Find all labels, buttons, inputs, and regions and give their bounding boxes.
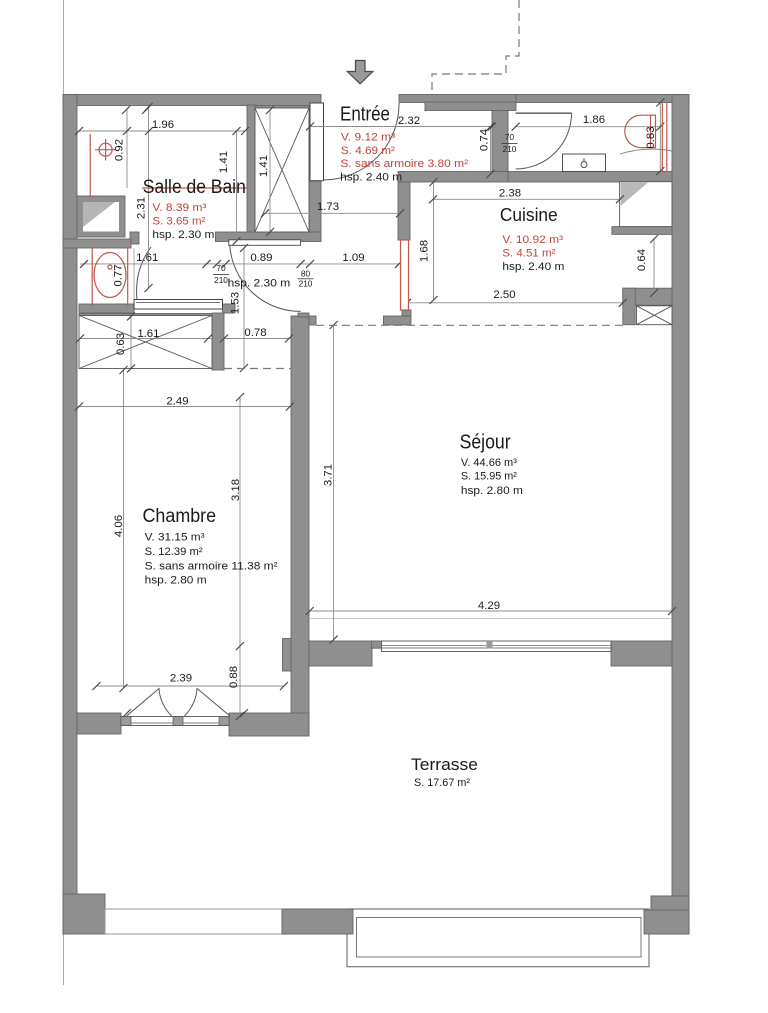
svg-text:0.83: 0.83 (645, 126, 657, 148)
svg-text:4.29: 4.29 (478, 600, 500, 612)
svg-text:1.96: 1.96 (152, 119, 174, 131)
svg-text:2.39: 2.39 (170, 673, 192, 685)
svg-text:hsp. 2.30 m: hsp. 2.30 m (228, 278, 291, 290)
svg-text:3.71: 3.71 (323, 464, 335, 486)
svg-text:V. 31.15 m³: V. 31.15 m³ (145, 532, 205, 544)
svg-text:1.61: 1.61 (136, 252, 158, 264)
svg-text:2.49: 2.49 (166, 396, 188, 408)
svg-text:hsp. 2.80 m: hsp. 2.80 m (461, 485, 523, 497)
svg-text:S. sans armoire 11.38 m²: S. sans armoire 11.38 m² (145, 560, 278, 572)
svg-text:70: 70 (216, 263, 226, 273)
svg-text:hsp. 2.30 m: hsp. 2.30 m (152, 229, 214, 241)
svg-text:0.89: 0.89 (250, 252, 272, 264)
svg-text:S. 15.95 m²: S. 15.95 m² (461, 471, 517, 483)
svg-text:0.64: 0.64 (636, 249, 648, 271)
svg-text:0.77: 0.77 (113, 264, 125, 286)
svg-text:Entrée: Entrée (340, 103, 390, 125)
svg-text:hsp. 2.80 m: hsp. 2.80 m (145, 575, 207, 587)
svg-text:210: 210 (214, 275, 228, 285)
svg-text:0.88: 0.88 (228, 666, 240, 688)
svg-text:2.31: 2.31 (136, 197, 148, 219)
svg-text:0.78: 0.78 (244, 327, 266, 339)
svg-text:S. sans armoire 3.80 m²: S. sans armoire 3.80 m² (340, 158, 468, 170)
svg-text:210: 210 (299, 278, 313, 288)
svg-text:S. 12.39 m²: S. 12.39 m² (145, 546, 203, 558)
svg-text:Séjour: Séjour (460, 432, 511, 454)
svg-text:0.74: 0.74 (478, 129, 490, 151)
svg-text:4.06: 4.06 (113, 515, 125, 537)
svg-text:S. 3.65 m²: S. 3.65 m² (152, 215, 205, 227)
svg-text:2.32: 2.32 (398, 115, 420, 127)
svg-text:S. 4.69 m²: S. 4.69 m² (341, 145, 395, 157)
svg-text:1.73: 1.73 (317, 201, 339, 213)
svg-text:210: 210 (503, 144, 517, 154)
svg-text:80: 80 (301, 269, 311, 279)
svg-text:70: 70 (505, 132, 515, 142)
svg-text:V. 8.39 m³: V. 8.39 m³ (152, 202, 206, 214)
svg-text:1.68: 1.68 (419, 240, 431, 262)
svg-text:V. 44.66 m³: V. 44.66 m³ (461, 457, 517, 469)
svg-text:hsp. 2.40 m: hsp. 2.40 m (502, 261, 564, 273)
svg-text:3.18: 3.18 (230, 479, 242, 501)
svg-text:1.61: 1.61 (137, 328, 159, 340)
svg-text:1.41: 1.41 (258, 155, 270, 177)
svg-text:Salle de Bain: Salle de Bain (143, 176, 246, 198)
svg-text:1.41: 1.41 (218, 151, 230, 173)
svg-text:Chambre: Chambre (143, 506, 217, 527)
svg-text:hsp. 2.40 m: hsp. 2.40 m (340, 172, 402, 184)
svg-text:V. 10.92 m³: V. 10.92 m³ (502, 234, 563, 246)
svg-text:2.50: 2.50 (493, 289, 515, 301)
svg-text:0.63: 0.63 (115, 333, 127, 355)
svg-text:S. 17.67 m²: S. 17.67 m² (414, 777, 470, 789)
svg-text:0.92: 0.92 (114, 139, 126, 161)
svg-text:Terrasse: Terrasse (411, 756, 478, 774)
svg-text:S. 4.51 m²: S. 4.51 m² (502, 248, 555, 260)
svg-text:1.86: 1.86 (583, 114, 605, 126)
svg-text:Cuisine: Cuisine (500, 205, 558, 226)
svg-text:2.38: 2.38 (499, 188, 521, 200)
svg-text:1.53: 1.53 (230, 292, 242, 314)
svg-text:V. 9.12 m³: V. 9.12 m³ (341, 131, 395, 143)
svg-text:1.09: 1.09 (342, 252, 364, 264)
